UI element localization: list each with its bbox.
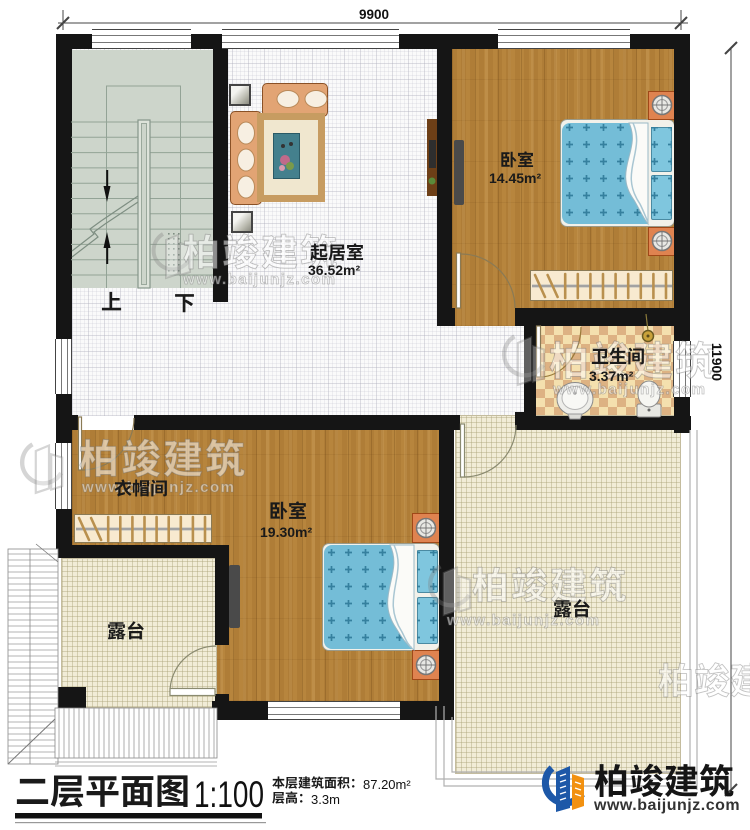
svg-text:3.3m: 3.3m <box>311 792 340 807</box>
svg-text:87.20m²: 87.20m² <box>363 777 411 792</box>
svg-text:www.baijunjz.com: www.baijunjz.com <box>593 797 740 814</box>
svg-text:1:100: 1:100 <box>194 774 264 815</box>
